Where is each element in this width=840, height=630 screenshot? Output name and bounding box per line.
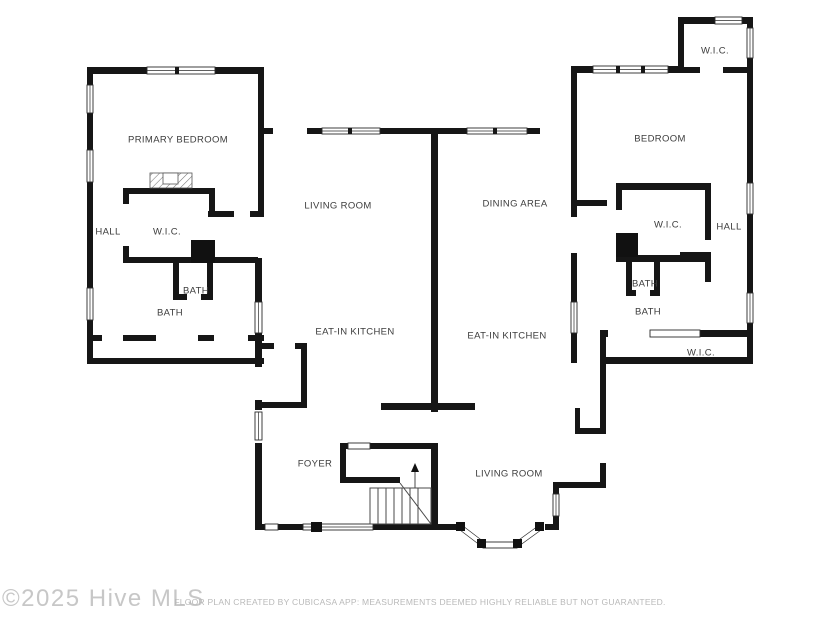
room-label-bedroom: BEDROOM bbox=[634, 134, 686, 145]
room-label-eat-in-kitchen-left: EAT-IN KITCHEN bbox=[315, 327, 394, 338]
floor-plan-drawing bbox=[0, 0, 840, 630]
closet-hatch-icon bbox=[150, 173, 192, 188]
room-label-eat-in-kitchen-right: EAT-IN KITCHEN bbox=[467, 331, 546, 342]
stairs-up-arrow-icon bbox=[411, 463, 419, 472]
room-label-bath-right-small: BATH bbox=[632, 279, 658, 290]
room-label-primary-bedroom: PRIMARY BEDROOM bbox=[128, 135, 228, 146]
room-label-hall-right: HALL bbox=[716, 222, 741, 233]
front-door-icon bbox=[311, 522, 322, 532]
room-label-living-room-top: LIVING ROOM bbox=[304, 201, 371, 212]
fireplace-right-icon bbox=[616, 233, 638, 257]
cubicasa-disclaimer: FLOOR PLAN CREATED BY CUBICASA APP: MEAS… bbox=[174, 597, 665, 607]
walls bbox=[87, 17, 753, 530]
room-label-bath-right: BATH bbox=[635, 307, 661, 318]
room-label-wic-left: W.I.C. bbox=[153, 227, 181, 238]
room-label-living-room-bottom: LIVING ROOM bbox=[475, 469, 542, 480]
room-label-bath-left-small: BATH bbox=[183, 286, 209, 297]
room-label-wic-right: W.I.C. bbox=[654, 220, 682, 231]
room-label-dining-area: DINING AREA bbox=[482, 199, 547, 210]
stairs-icon bbox=[370, 463, 431, 524]
fireplace-left-icon bbox=[191, 240, 215, 263]
room-label-wic-bottom-right: W.I.C. bbox=[687, 348, 715, 359]
bay-window bbox=[456, 522, 544, 548]
windows bbox=[87, 17, 753, 532]
floor-plan-page: { "plan": { "rooms": [ {"label": "PRIMAR… bbox=[0, 0, 840, 630]
room-label-foyer: FOYER bbox=[298, 459, 332, 470]
room-label-hall-left: HALL bbox=[95, 227, 120, 238]
room-label-wic-top-right: W.I.C. bbox=[701, 46, 729, 57]
room-label-bath-left: BATH bbox=[157, 308, 183, 319]
